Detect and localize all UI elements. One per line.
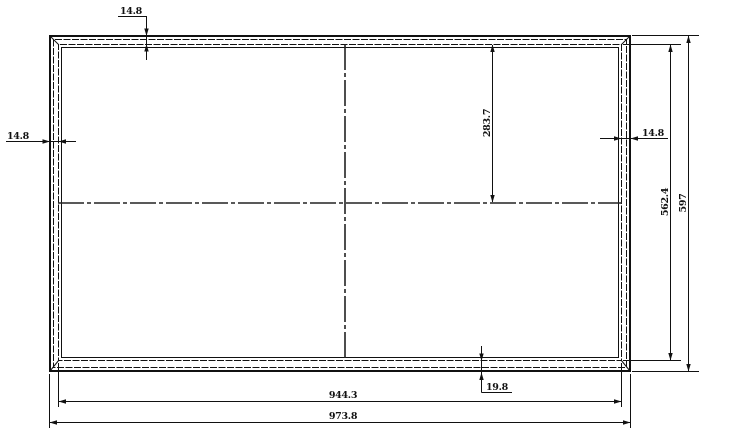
dim-right-border-label: 14.8 <box>642 128 665 139</box>
arrowhead <box>144 29 148 37</box>
arrowhead <box>623 420 631 424</box>
dim-right-border: 14.8 <box>600 128 668 141</box>
arrowhead <box>614 399 622 403</box>
arrowhead <box>614 136 622 140</box>
dim-top-border: 14.8 <box>118 6 149 60</box>
dim-center-offset-label: 283.7 <box>482 109 493 137</box>
corner-chamfer-top-left <box>50 36 59 45</box>
dim-inner-width-label: 944.3 <box>329 390 357 401</box>
corner-chamfer-top-right <box>621 36 630 45</box>
dim-inner-height-label: 562.4 <box>660 187 671 216</box>
dim-inner-width: 944.3 <box>59 363 622 407</box>
arrowhead <box>631 136 639 140</box>
arrowhead <box>490 45 494 53</box>
dim-outer-width-label: 973.8 <box>329 411 358 422</box>
arrowhead <box>686 36 690 44</box>
dim-outer-height-label: 597 <box>678 194 689 213</box>
dim-left-border: 14.8 <box>6 131 76 144</box>
corner-chamfer-bottom-left <box>50 360 59 371</box>
dim-inner-height: 562.4 <box>623 45 681 361</box>
cad-drawing: 14.8 14.8 14.8 19.8 283.7 <box>0 0 730 438</box>
arrowhead <box>59 399 67 403</box>
dim-top-border-label: 14.8 <box>120 6 143 17</box>
dim-bottom-inset-label: 19.8 <box>486 382 509 393</box>
corner-chamfer-bottom-right <box>621 360 630 371</box>
dim-left-border-label: 14.8 <box>7 131 30 142</box>
arrowhead <box>668 353 672 361</box>
arrowhead <box>59 139 67 143</box>
arrowhead <box>668 45 672 53</box>
arrowhead <box>43 139 51 143</box>
arrowhead <box>686 364 690 372</box>
drawing-canvas: 14.8 14.8 14.8 19.8 283.7 <box>0 0 730 438</box>
arrowhead <box>490 195 494 203</box>
dim-bottom-inset: 19.8 <box>479 346 512 393</box>
dim-center-offset: 283.7 <box>482 45 495 203</box>
centerlines <box>58 44 622 361</box>
arrowhead <box>479 373 483 381</box>
arrowhead <box>50 420 58 424</box>
